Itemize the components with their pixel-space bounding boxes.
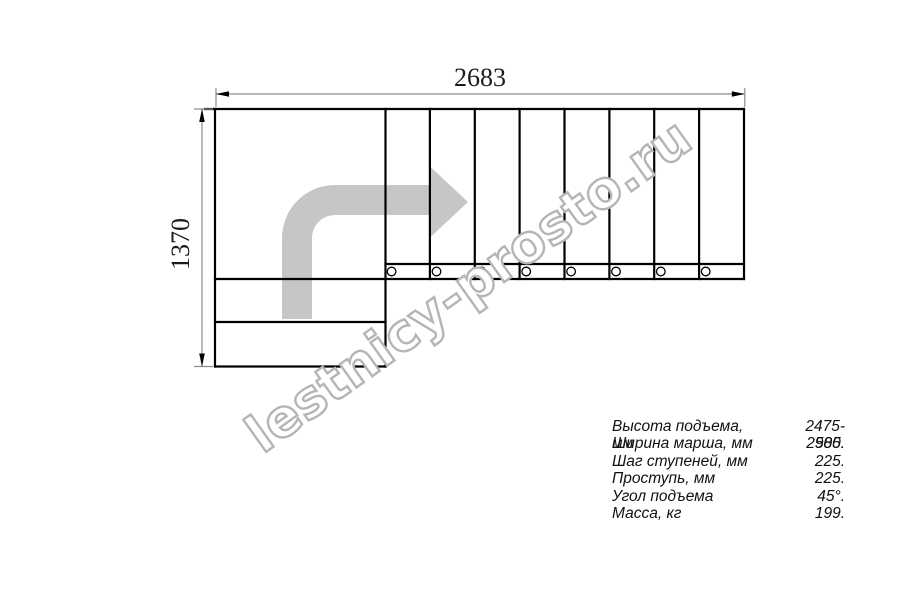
- spec-value: 45°.: [817, 488, 845, 505]
- spec-label: Угол подъема: [612, 488, 713, 505]
- spec-value: 225.: [815, 453, 845, 470]
- spec-row: Высота подъема, мм 2475-2585.: [612, 418, 845, 435]
- spec-row: Шаг ступеней, мм 225.: [612, 453, 845, 470]
- spec-label: Проступь, мм: [612, 470, 715, 487]
- spec-label: Ширина марша, мм: [612, 435, 753, 452]
- fastener-hole-icon: [701, 267, 710, 276]
- specs-table: Высота подъема, мм 2475-2585. Ширина мар…: [612, 418, 845, 522]
- spec-row: Масса, кг 199.: [612, 505, 845, 522]
- spec-row: Проступь, мм 225.: [612, 470, 845, 487]
- fastener-hole-icon: [657, 267, 666, 276]
- arrowhead-left-icon: [216, 91, 229, 96]
- spec-row: Угол подъема 45°.: [612, 488, 845, 505]
- arrowhead-up-icon: [199, 109, 205, 122]
- spec-label: Высота подъема, мм: [612, 418, 767, 435]
- spec-value: 199.: [815, 505, 845, 522]
- spec-value: 225.: [815, 470, 845, 487]
- spec-value: 900.: [815, 435, 845, 452]
- dim-width-label: 2683: [454, 63, 506, 92]
- spec-label: Масса, кг: [612, 505, 681, 522]
- blueprint-canvas: 2683 1370 lestnicy-prosto.ru Высота подъ…: [0, 0, 900, 600]
- fastener-hole-icon: [612, 267, 621, 276]
- spec-label: Шаг ступеней, мм: [612, 453, 748, 470]
- fastener-hole-icon: [387, 267, 396, 276]
- fastener-hole-icon: [567, 267, 576, 276]
- arrowhead-down-icon: [199, 354, 205, 367]
- spec-value: 2475-2585.: [767, 418, 845, 435]
- arrowhead-right-icon: [732, 91, 745, 96]
- dim-height-label: 1370: [166, 218, 195, 270]
